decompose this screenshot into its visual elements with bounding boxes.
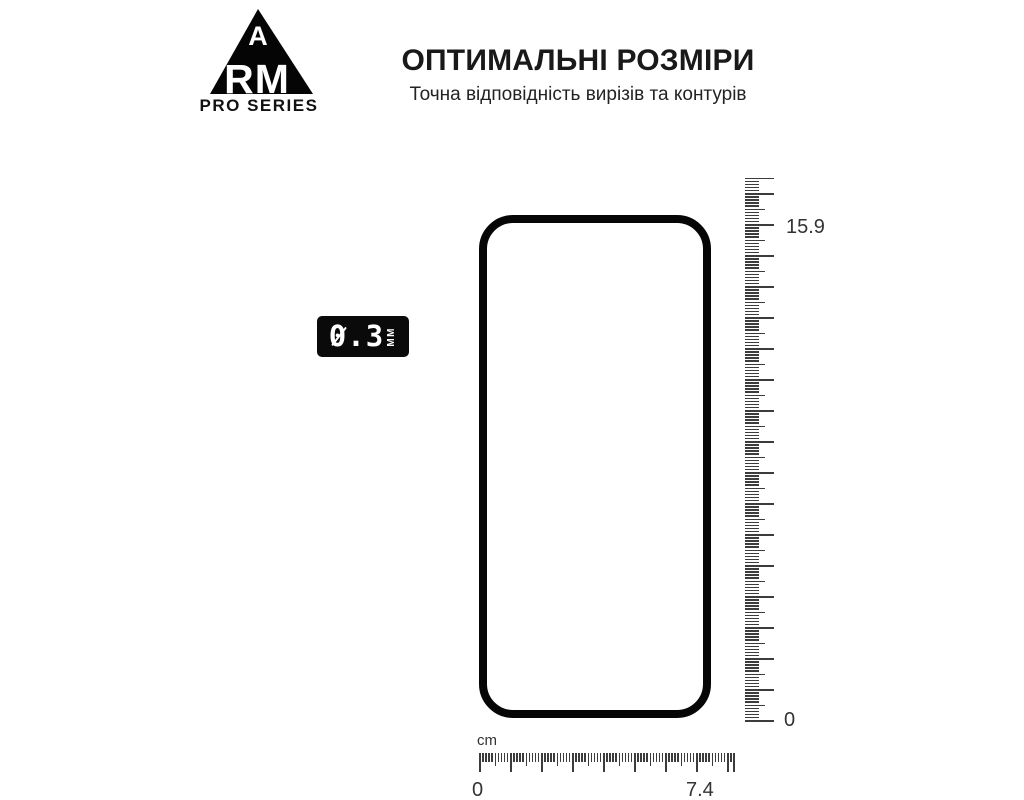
- ruler-tick: [745, 398, 759, 400]
- ruler-tick: [625, 753, 627, 762]
- ruler-tick: [745, 264, 759, 266]
- ruler-tick: [696, 753, 698, 772]
- ruler-tick: [745, 615, 759, 617]
- ruler-tick: [721, 753, 723, 762]
- ruler-tick: [745, 441, 774, 443]
- ruler-tick: [745, 308, 759, 310]
- ruler-tick: [745, 494, 759, 496]
- ruler-tick: [603, 753, 605, 772]
- ruler-tick: [662, 753, 664, 762]
- ruler-tick: [681, 753, 683, 766]
- ruler-tick: [745, 534, 774, 536]
- ruler-tick: [745, 599, 759, 601]
- ruler-tick: [745, 323, 759, 325]
- ruler-tick: [745, 624, 759, 626]
- ruler-tick: [745, 618, 759, 620]
- horizontal-ruler-max-label: 7.4: [686, 779, 714, 800]
- ruler-tick: [745, 435, 759, 437]
- ruler-tick: [745, 283, 759, 285]
- ruler-tick: [488, 753, 490, 762]
- ruler-tick: [745, 481, 759, 483]
- ruler-tick: [745, 680, 759, 682]
- ruler-tick: [557, 753, 559, 766]
- ruler-tick: [745, 246, 759, 248]
- ruler-tick: [745, 447, 759, 449]
- ruler-tick: [578, 753, 580, 762]
- ruler-tick: [745, 243, 759, 245]
- thickness-unit: MM: [387, 327, 397, 347]
- ruler-tick: [628, 753, 630, 762]
- ruler-tick: [584, 753, 586, 762]
- ruler-tick: [566, 753, 568, 762]
- ruler-tick: [745, 466, 759, 468]
- ruler-tick: [745, 401, 759, 403]
- thickness-value: 0.3: [329, 322, 384, 351]
- ruler-tick: [745, 178, 774, 180]
- ruler-tick: [745, 193, 774, 195]
- ruler-tick: [482, 753, 484, 762]
- ruler-tick: [745, 643, 765, 645]
- ruler-tick: [507, 753, 509, 762]
- ruler-tick: [637, 753, 639, 762]
- ruler-tick: [745, 252, 759, 254]
- ruler-tick: [519, 753, 521, 762]
- ruler-tick: [745, 636, 759, 638]
- ruler-tick: [745, 286, 774, 288]
- ruler-tick: [538, 753, 540, 762]
- ruler-tick: [745, 233, 759, 235]
- ruler-tick: [745, 280, 759, 282]
- ruler-tick: [733, 753, 735, 772]
- ruler-tick: [745, 639, 759, 641]
- ruler-tick: [745, 382, 759, 384]
- ruler-tick: [745, 553, 759, 555]
- ruler-tick: [745, 314, 759, 316]
- ruler-tick: [745, 689, 774, 691]
- ruler-tick: [646, 753, 648, 762]
- ruler-tick: [745, 267, 759, 269]
- ruler-tick: [745, 503, 774, 505]
- ruler-tick: [745, 559, 759, 561]
- ruler-tick: [745, 565, 774, 567]
- ruler-tick: [504, 753, 506, 762]
- ruler-tick: [745, 196, 759, 198]
- ruler-tick: [745, 221, 759, 223]
- ruler-tick: [745, 215, 759, 217]
- ruler-tick: [510, 753, 512, 772]
- ruler-tick: [606, 753, 608, 762]
- ruler-tick: [491, 753, 493, 762]
- ruler-tick: [745, 212, 759, 214]
- ruler-tick: [715, 753, 717, 762]
- ruler-tick: [745, 360, 759, 362]
- ruler-tick: [745, 497, 759, 499]
- ruler-tick: [745, 646, 759, 648]
- ruler-tick: [745, 249, 759, 251]
- ruler-tick: [643, 753, 645, 762]
- ruler-tick: [745, 683, 759, 685]
- ruler-tick: [597, 753, 599, 762]
- ruler-tick: [745, 317, 774, 319]
- ruler-tick: [745, 590, 759, 592]
- ruler-tick: [745, 478, 759, 480]
- ruler-tick: [745, 571, 759, 573]
- ruler-tick: [485, 753, 487, 762]
- ruler-tick: [745, 385, 759, 387]
- ruler-tick: [745, 333, 765, 335]
- ruler-tick: [479, 753, 481, 772]
- ruler-tick: [745, 658, 774, 660]
- ruler-tick: [745, 289, 759, 291]
- ruler-tick: [745, 357, 759, 359]
- ruler-tick: [532, 753, 534, 762]
- ruler-tick: [745, 705, 765, 707]
- ruler-tick: [745, 602, 759, 604]
- header: ОПТИМАЛЬНІ РОЗМІРИ Точна відповідність в…: [400, 44, 756, 107]
- ruler-tick: [745, 664, 759, 666]
- logo-letter-a: A: [248, 21, 268, 51]
- ruler-tick: [745, 224, 774, 226]
- ruler-tick: [650, 753, 652, 766]
- vertical-ruler-min-label: 0: [784, 709, 795, 732]
- ruler-tick: [745, 422, 759, 424]
- arm-logo: A RM PRO SERIES: [196, 6, 322, 118]
- ruler-tick: [708, 753, 710, 762]
- ruler-tick: [745, 274, 759, 276]
- ruler-tick: [535, 753, 537, 762]
- horizontal-ruler-unit-label: cm: [477, 732, 497, 749]
- ruler-tick: [745, 181, 759, 183]
- ruler-tick: [745, 621, 759, 623]
- ruler-tick: [745, 546, 759, 548]
- ruler-tick: [553, 753, 555, 762]
- ruler-tick: [745, 574, 759, 576]
- ruler-tick: [745, 450, 759, 452]
- ruler-tick: [498, 753, 500, 762]
- ruler-tick: [745, 438, 759, 440]
- ruler-tick: [745, 258, 759, 260]
- ruler-tick: [745, 525, 759, 527]
- ruler-tick: [612, 753, 614, 762]
- ruler-tick: [668, 753, 670, 762]
- ruler-tick: [745, 218, 759, 220]
- ruler-tick: [653, 753, 655, 762]
- ruler-tick: [600, 753, 602, 762]
- ruler-tick: [745, 302, 765, 304]
- ruler-tick: [745, 320, 759, 322]
- ruler-tick: [745, 509, 759, 511]
- ruler-tick: [745, 472, 774, 474]
- ruler-tick: [522, 753, 524, 762]
- ruler-tick: [745, 376, 759, 378]
- ruler-tick: [745, 205, 759, 207]
- ruler-tick: [745, 410, 774, 412]
- ruler-tick: [745, 587, 759, 589]
- ruler-tick: [745, 295, 759, 297]
- ruler-tick: [745, 488, 765, 490]
- ruler-tick: [724, 753, 726, 762]
- ruler-tick: [745, 190, 759, 192]
- ruler-tick: [501, 753, 503, 762]
- ruler-tick: [745, 426, 765, 428]
- ruler-tick: [745, 184, 759, 186]
- ruler-tick: [745, 627, 774, 629]
- ruler-tick: [745, 416, 759, 418]
- horizontal-ruler-min-label: 0: [472, 779, 483, 800]
- page-subtitle: Точна відповідність вирізів та контурів: [400, 83, 756, 107]
- ruler-tick: [745, 515, 759, 517]
- ruler-tick: [745, 562, 759, 564]
- ruler-tick: [745, 537, 759, 539]
- ruler-tick: [745, 605, 759, 607]
- ruler-tick: [745, 500, 759, 502]
- ruler-tick: [745, 395, 765, 397]
- ruler-tick: [745, 692, 759, 694]
- ruler-tick: [687, 753, 689, 762]
- ruler-tick: [727, 753, 729, 772]
- ruler-tick: [702, 753, 704, 762]
- ruler-tick: [745, 255, 774, 257]
- ruler-tick: [745, 388, 759, 390]
- ruler-tick: [745, 667, 759, 669]
- ruler-tick: [745, 469, 759, 471]
- ruler-tick: [745, 345, 759, 347]
- ruler-tick: [745, 305, 759, 307]
- ruler-tick: [745, 457, 765, 459]
- ruler-tick: [659, 753, 661, 762]
- ruler-tick: [634, 753, 636, 772]
- ruler-tick: [745, 512, 759, 514]
- ruler-tick: [547, 753, 549, 762]
- ruler-tick: [745, 271, 765, 273]
- ruler-tick: [588, 753, 590, 766]
- ruler-tick: [745, 717, 759, 719]
- ruler-tick: [745, 199, 759, 201]
- ruler-tick: [745, 407, 759, 409]
- ruler-tick: [572, 753, 574, 772]
- page-title: ОПТИМАЛЬНІ РОЗМІРИ: [400, 44, 756, 78]
- ruler-tick: [609, 753, 611, 762]
- page: A RM PRO SERIES ОПТИМАЛЬНІ РОЗМІРИ Точна…: [0, 0, 1024, 800]
- ruler-tick: [581, 753, 583, 762]
- ruler-tick: [690, 753, 692, 762]
- ruler-tick: [594, 753, 596, 762]
- ruler-tick: [745, 584, 759, 586]
- ruler-tick: [569, 753, 571, 762]
- ruler-tick: [745, 351, 759, 353]
- ruler-tick: [526, 753, 528, 766]
- arm-triangle-icon: A RM: [196, 6, 322, 98]
- ruler-tick: [745, 261, 759, 263]
- ruler-tick: [745, 348, 774, 350]
- ruler-tick: [560, 753, 562, 762]
- ruler-tick: [745, 311, 759, 313]
- ruler-tick: [745, 593, 759, 595]
- thickness-badge: 0.3 MM: [317, 316, 409, 357]
- ruler-tick: [712, 753, 714, 766]
- ruler-tick: [575, 753, 577, 762]
- ruler-tick: [745, 329, 759, 331]
- ruler-tick: [745, 475, 759, 477]
- logo-letters-rm: RM: [224, 56, 290, 98]
- ruler-tick: [745, 491, 759, 493]
- ruler-tick: [745, 413, 759, 415]
- horizontal-ruler: [479, 753, 736, 773]
- ruler-tick: [544, 753, 546, 762]
- ruler-tick: [674, 753, 676, 762]
- ruler-tick: [745, 677, 759, 679]
- ruler-tick: [745, 370, 759, 372]
- ruler-tick: [745, 568, 759, 570]
- ruler-tick: [529, 753, 531, 762]
- ruler-tick: [684, 753, 686, 762]
- ruler-tick: [745, 577, 759, 579]
- ruler-tick: [730, 753, 732, 762]
- ruler-tick: [745, 649, 759, 651]
- ruler-tick: [745, 661, 759, 663]
- ruler-tick: [745, 342, 759, 344]
- ruler-tick: [745, 652, 759, 654]
- ruler-tick: [745, 708, 759, 710]
- ruler-tick: [745, 298, 759, 300]
- ruler-tick: [640, 753, 642, 762]
- ruler-tick: [745, 581, 765, 583]
- ruler-tick: [745, 339, 759, 341]
- ruler-tick: [745, 633, 759, 635]
- ruler-tick: [745, 711, 759, 713]
- vertical-ruler: [745, 177, 775, 722]
- ruler-tick: [745, 354, 759, 356]
- ruler-tick: [745, 460, 759, 462]
- ruler-tick: [615, 753, 617, 762]
- ruler-tick: [665, 753, 667, 772]
- ruler-tick: [745, 463, 759, 465]
- ruler-tick: [656, 753, 658, 762]
- ruler-tick: [745, 379, 774, 381]
- ruler-tick: [591, 753, 593, 762]
- ruler-tick: [563, 753, 565, 762]
- ruler-tick: [745, 429, 759, 431]
- ruler-tick: [745, 230, 759, 232]
- ruler-tick: [745, 550, 765, 552]
- ruler-tick: [705, 753, 707, 762]
- ruler-tick: [745, 336, 759, 338]
- ruler-tick: [745, 326, 759, 328]
- ruler-tick: [699, 753, 701, 762]
- ruler-tick: [745, 720, 774, 722]
- ruler-tick: [745, 236, 759, 238]
- ruler-tick: [745, 655, 759, 657]
- ruler-tick: [516, 753, 518, 762]
- ruler-tick: [622, 753, 624, 762]
- ruler-tick: [745, 187, 759, 189]
- ruler-tick: [745, 391, 759, 393]
- ruler-tick: [745, 202, 759, 204]
- ruler-tick: [745, 484, 759, 486]
- ruler-tick: [745, 373, 759, 375]
- ruler-tick: [745, 670, 759, 672]
- ruler-tick: [745, 364, 765, 366]
- logo-series-label: PRO SERIES: [196, 96, 322, 116]
- ruler-tick: [677, 753, 679, 762]
- ruler-tick: [745, 608, 759, 610]
- ruler-tick: [671, 753, 673, 762]
- ruler-tick: [745, 596, 774, 598]
- ruler-tick: [541, 753, 543, 772]
- ruler-tick: [550, 753, 552, 762]
- ruler-tick: [745, 209, 765, 211]
- ruler-tick: [745, 277, 759, 279]
- ruler-tick: [745, 432, 759, 434]
- ruler-tick: [745, 453, 759, 455]
- ruler-tick: [495, 753, 497, 766]
- ruler-tick: [745, 674, 765, 676]
- ruler-tick: [745, 419, 759, 421]
- ruler-tick: [631, 753, 633, 762]
- ruler-tick: [513, 753, 515, 762]
- ruler-tick: [745, 506, 759, 508]
- screen-protector-outline: [479, 215, 711, 718]
- ruler-tick: [745, 630, 759, 632]
- ruler-tick: [745, 367, 759, 369]
- ruler-tick: [745, 531, 759, 533]
- ruler-tick: [718, 753, 720, 762]
- ruler-tick: [693, 753, 695, 762]
- ruler-tick: [745, 556, 759, 558]
- ruler-tick: [745, 540, 759, 542]
- ruler-tick: [745, 522, 759, 524]
- ruler-tick: [619, 753, 621, 766]
- ruler-tick: [745, 695, 759, 697]
- ruler-tick: [745, 612, 765, 614]
- ruler-tick: [745, 714, 759, 716]
- ruler-tick: [745, 686, 759, 688]
- ruler-tick: [745, 444, 759, 446]
- ruler-tick: [745, 701, 759, 703]
- ruler-tick: [745, 292, 759, 294]
- ruler-tick: [745, 404, 759, 406]
- ruler-tick: [745, 528, 759, 530]
- ruler-tick: [745, 519, 765, 521]
- ruler-tick: [745, 227, 759, 229]
- ruler-tick: [745, 698, 759, 700]
- ruler-tick: [745, 543, 759, 545]
- ruler-tick: [745, 240, 765, 242]
- vertical-ruler-max-label: 15.9: [786, 216, 825, 239]
